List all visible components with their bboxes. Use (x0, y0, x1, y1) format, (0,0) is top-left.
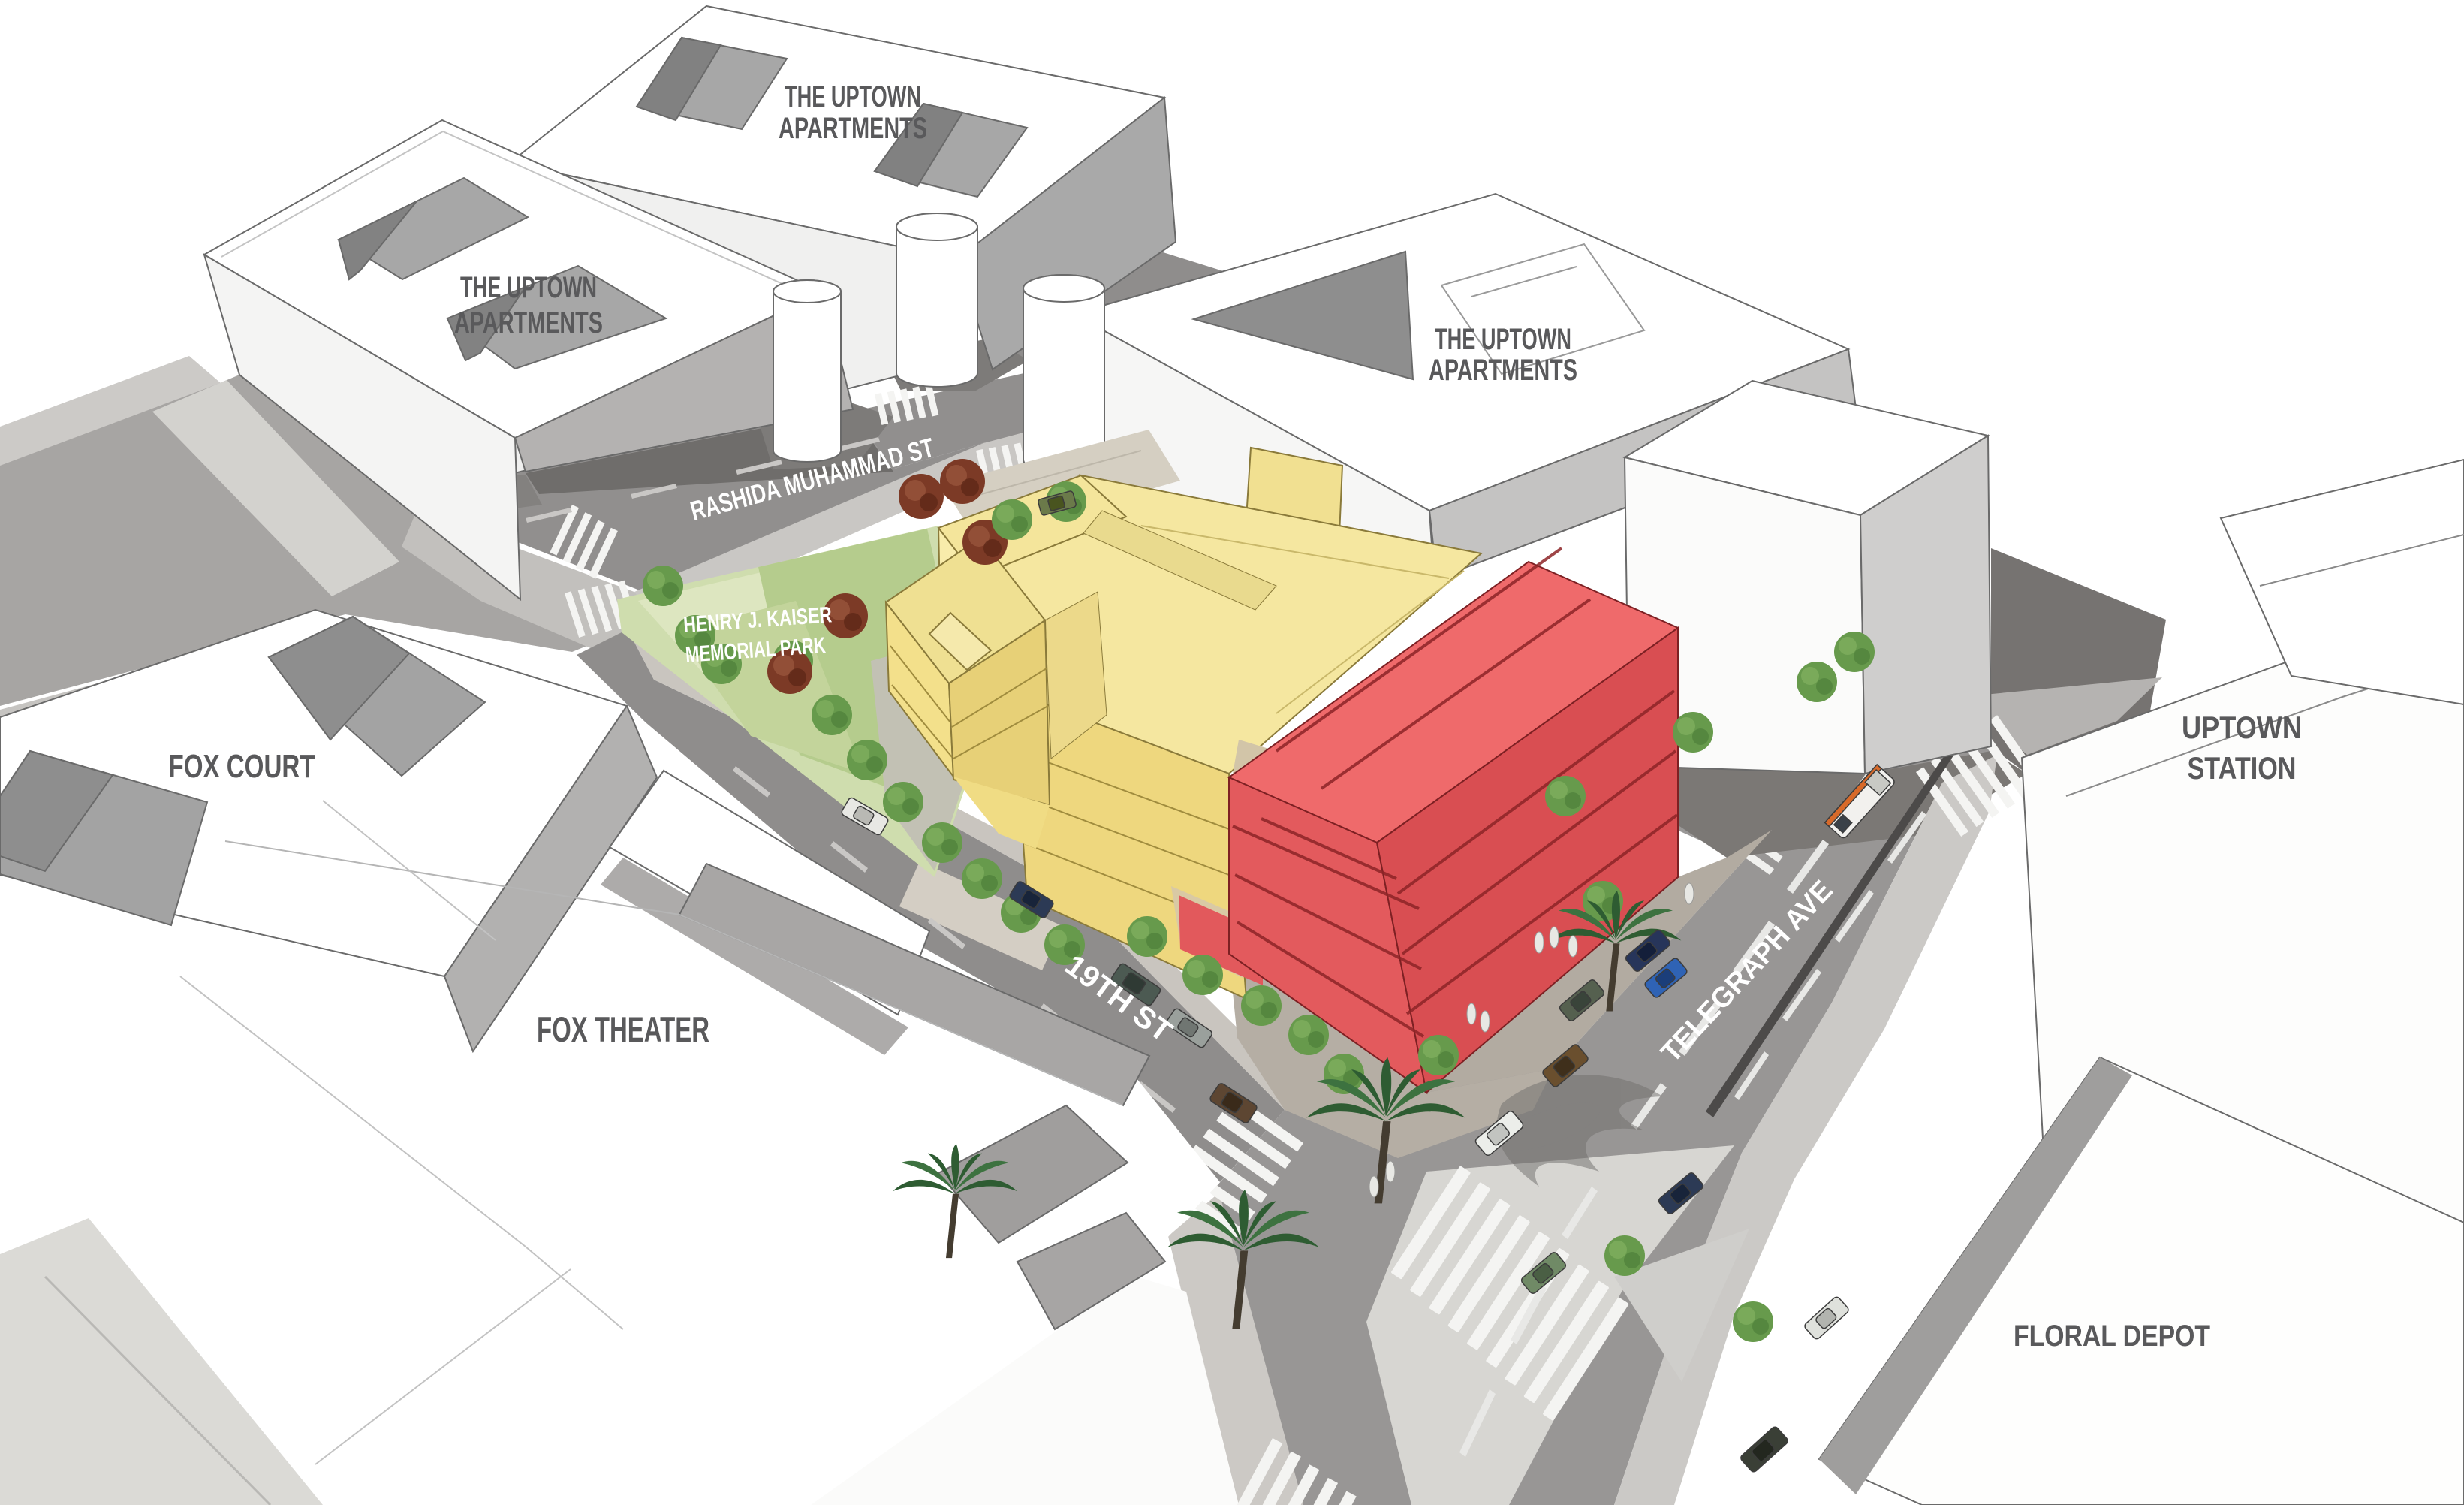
svg-text:FOX THEATER: FOX THEATER (537, 1009, 709, 1049)
svg-text:APARTMENTS: APARTMENTS (1429, 354, 1577, 387)
svg-text:STATION: STATION (2188, 750, 2297, 786)
svg-text:APARTMENTS: APARTMENTS (779, 112, 927, 145)
svg-text:THE UPTOWN: THE UPTOWN (460, 271, 597, 304)
svg-text:THE UPTOWN: THE UPTOWN (785, 80, 921, 113)
svg-text:THE UPTOWN: THE UPTOWN (1435, 323, 1571, 356)
svg-text:FLORAL DEPOT: FLORAL DEPOT (2014, 1320, 2210, 1353)
svg-text:APARTMENTS: APARTMENTS (454, 306, 603, 339)
svg-text:FOX COURT: FOX COURT (169, 748, 315, 785)
svg-text:UPTOWN: UPTOWN (2182, 710, 2302, 745)
